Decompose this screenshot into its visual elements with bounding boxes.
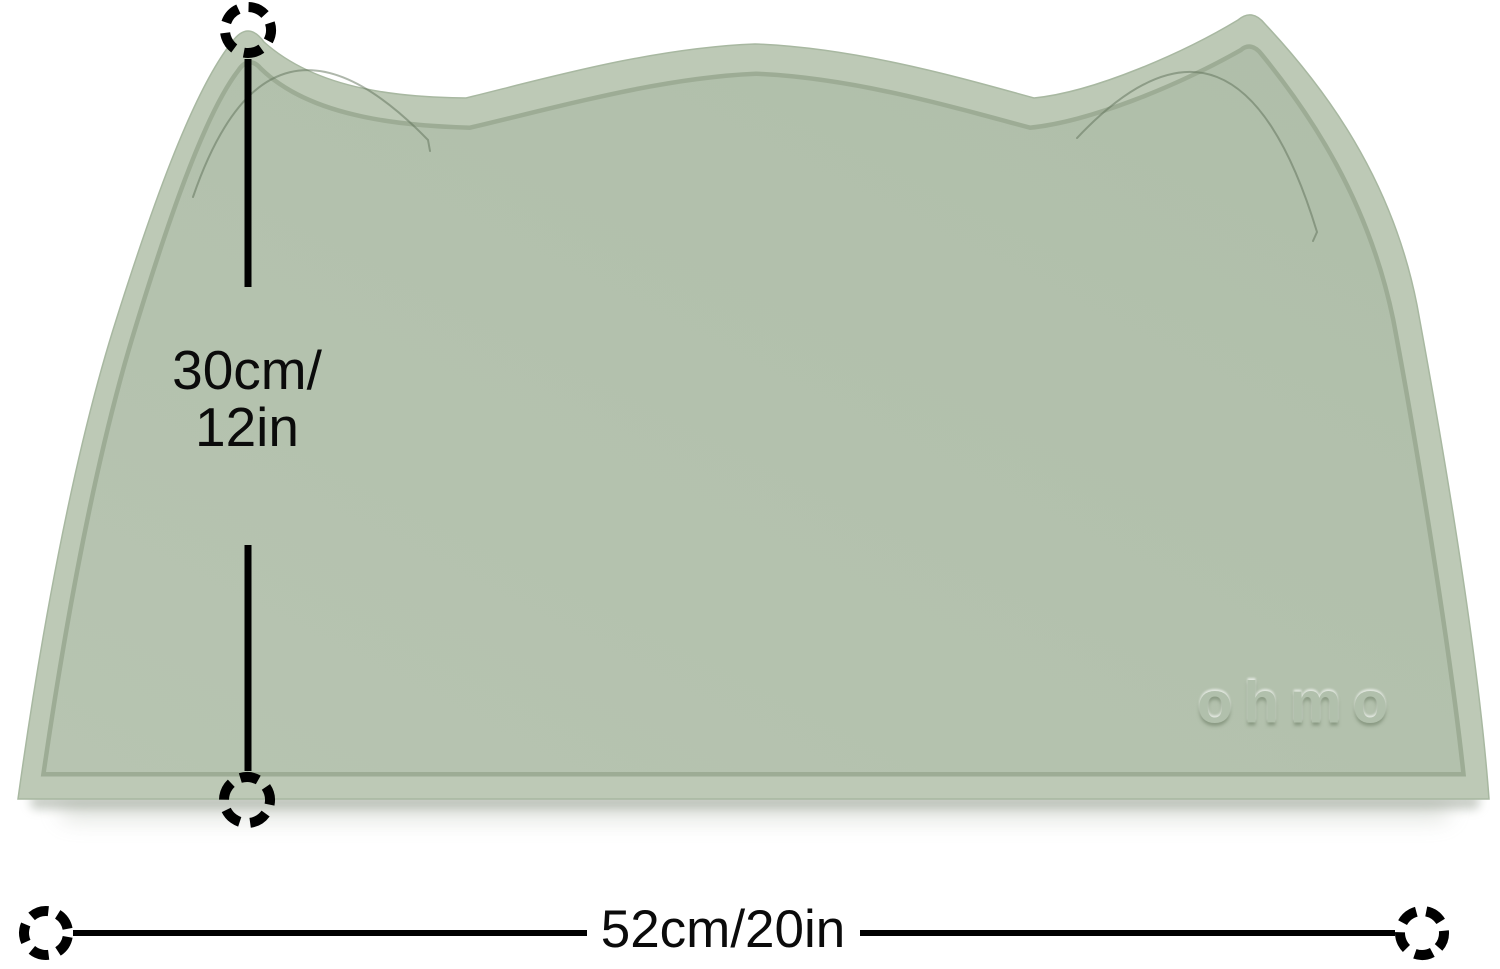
dashed-circle-marker-width-left-icon: [21, 908, 72, 959]
dashed-circle-marker-width-right-icon: [1392, 903, 1452, 963]
height-value-in: 12in: [195, 396, 299, 458]
height-value-cm: 30cm/: [172, 339, 322, 401]
width-dimension-label: 52cm/20in: [601, 903, 846, 956]
placemat-illustration-svg: [0, 0, 1500, 969]
brand-logo: OHMO: [1197, 670, 1399, 737]
product-dimension-diagram: 30cm/ 12in 52cm/20in OHMO: [0, 0, 1500, 969]
height-dimension-label: 30cm/ 12in: [172, 342, 322, 456]
